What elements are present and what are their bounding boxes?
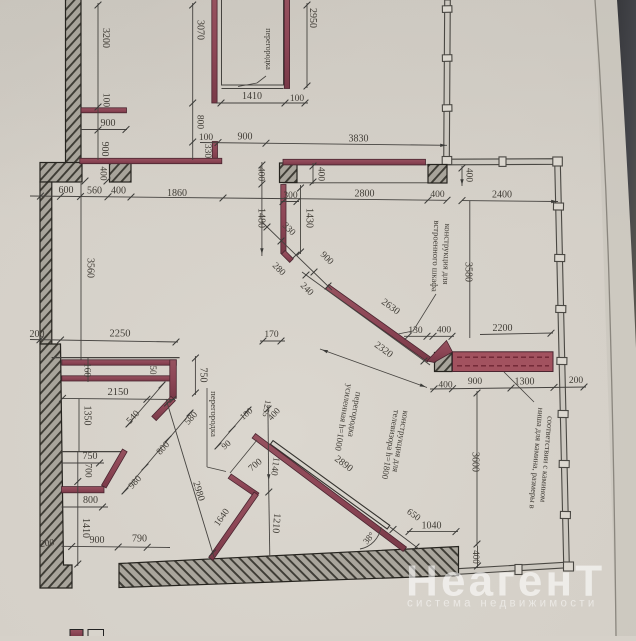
svg-text:1040: 1040 [422,521,442,532]
svg-text:3070: 3070 [195,20,206,40]
svg-text:790: 790 [132,534,147,545]
svg-text:400: 400 [438,381,453,391]
svg-text:3580: 3580 [463,262,474,282]
svg-text:2950: 2950 [307,8,318,28]
svg-text:900: 900 [90,535,105,546]
svg-text:170: 170 [264,330,279,340]
svg-text:1430: 1430 [304,208,315,228]
svg-text:перегородка: перегородка [264,28,273,70]
svg-text:3600: 3600 [470,452,481,472]
svg-text:100: 100 [101,93,111,108]
svg-text:900: 900 [238,132,253,143]
svg-text:2250: 2250 [110,329,131,340]
svg-text:330: 330 [202,144,212,159]
svg-text:3560: 3560 [85,258,96,278]
svg-text:900: 900 [468,377,483,387]
svg-text:система недвижимости: система недвижимости [407,598,598,610]
svg-text:400: 400 [256,167,266,182]
svg-text:400: 400 [98,166,108,181]
svg-text:2800: 2800 [355,189,375,200]
svg-text:300: 300 [283,191,298,201]
svg-text:2200: 2200 [493,323,513,334]
svg-text:1350: 1350 [82,406,93,426]
svg-text:2150: 2150 [108,387,129,398]
svg-text:200: 200 [569,376,584,386]
svg-text:400: 400 [464,168,474,183]
svg-text:400: 400 [316,167,326,182]
svg-text:700: 700 [83,463,93,478]
svg-text:1210: 1210 [270,513,283,534]
svg-text:100: 100 [290,94,305,104]
svg-text:100: 100 [199,133,214,143]
svg-text:800: 800 [83,495,98,506]
svg-text:600: 600 [59,185,74,196]
svg-text:900: 900 [99,142,110,157]
svg-text:3200: 3200 [100,28,111,48]
svg-text:400: 400 [430,190,445,200]
svg-text:200: 200 [39,538,55,550]
svg-text:1410: 1410 [242,91,262,102]
svg-text:750: 750 [197,368,208,383]
svg-text:900: 900 [101,118,116,129]
svg-text:400: 400 [111,186,126,197]
svg-text:400: 400 [437,326,452,336]
svg-text:3830: 3830 [349,134,369,145]
svg-text:200: 200 [30,329,45,340]
svg-text:1860: 1860 [167,188,187,199]
svg-text:160: 160 [82,363,92,378]
svg-text:2400: 2400 [492,190,512,201]
svg-text:750: 750 [83,451,98,462]
svg-text:50: 50 [148,366,158,376]
svg-text:800: 800 [195,115,205,130]
svg-text:560: 560 [87,186,102,197]
svg-text:перегородка: перегородка [209,391,219,437]
